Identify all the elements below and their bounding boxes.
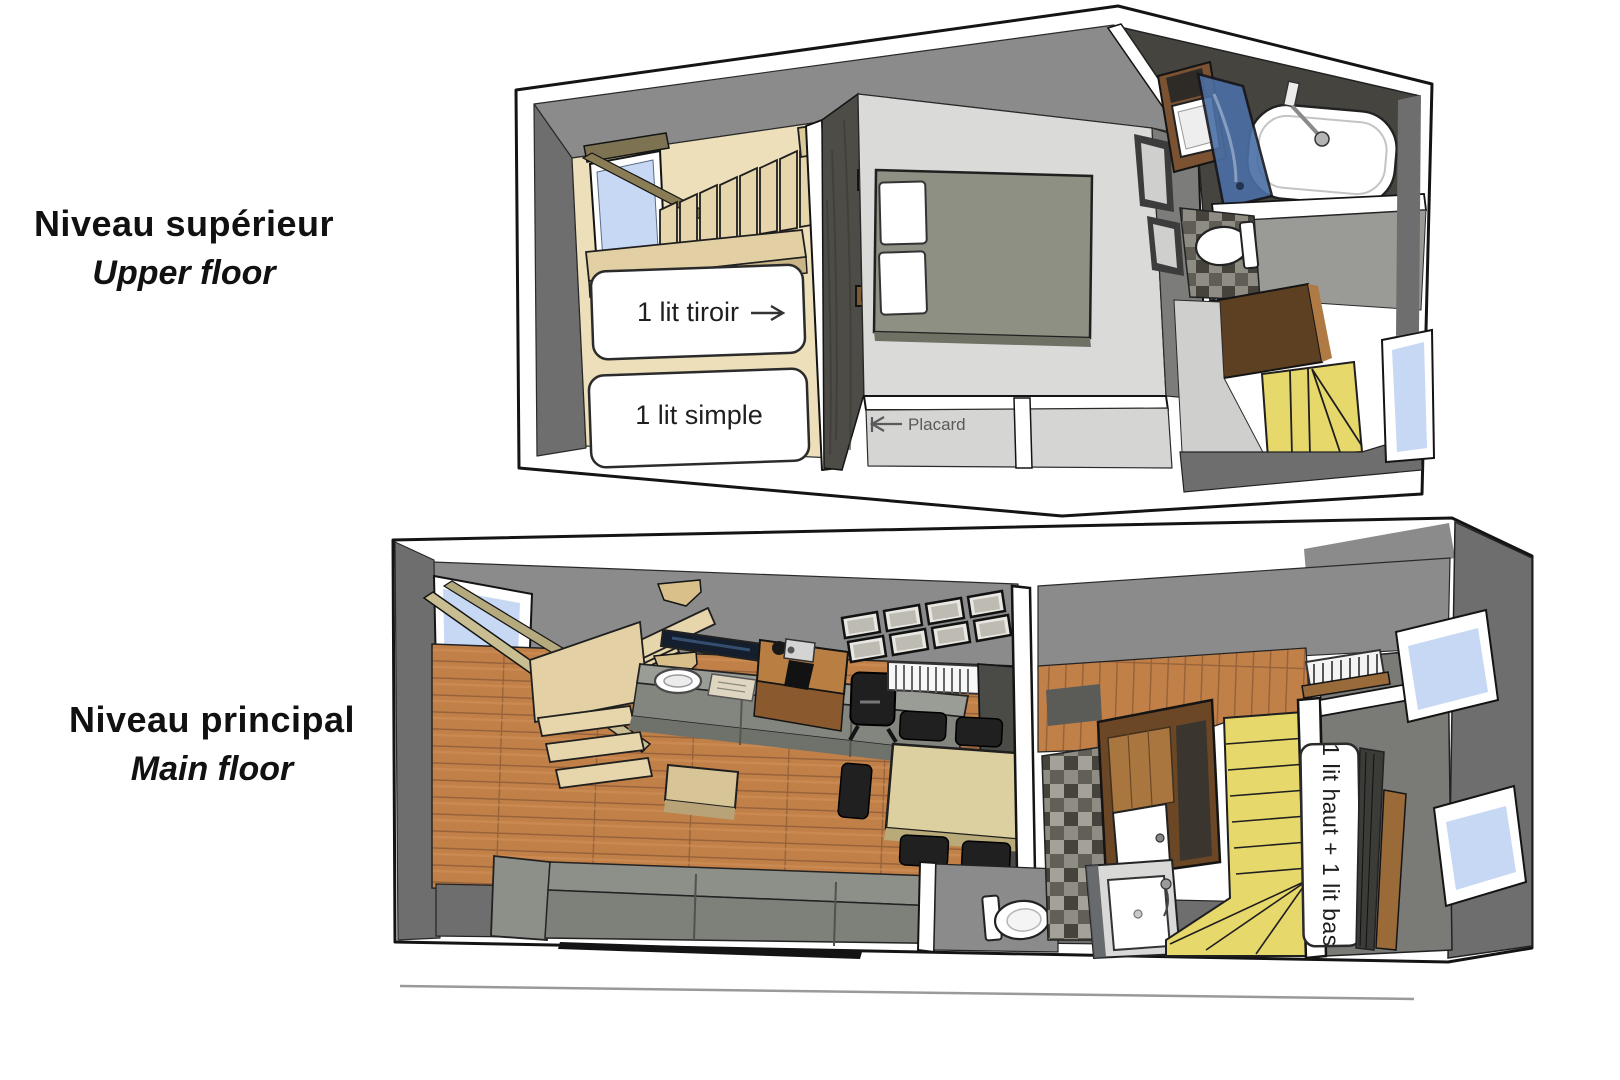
upper-kids-bedroom: 1 lit tiroir 1 lit simple — [534, 104, 833, 468]
pillow — [879, 181, 927, 244]
dining-chair — [955, 717, 1002, 747]
bed-drawer-label: 1 lit tiroir — [637, 297, 739, 327]
radiator — [888, 662, 982, 694]
dining-chair — [899, 711, 946, 741]
shower-head — [1161, 879, 1171, 889]
coffee-table — [664, 765, 738, 820]
closet-label: Placard — [908, 415, 966, 434]
media-cabinet — [754, 639, 848, 731]
door-handle — [1156, 834, 1164, 842]
bed-single-label: 1 lit simple — [635, 400, 763, 430]
pillow — [879, 251, 927, 315]
wc-room — [918, 862, 1058, 952]
floorplan-page: Niveau supérieur Upper floor Niveau prin… — [0, 0, 1620, 1080]
dining-table — [886, 744, 1030, 840]
main-floor-plan: 1 lit haut + 1 lit bas — [393, 518, 1532, 999]
bunk-bed-label: 1 lit haut + 1 lit bas — [1318, 743, 1344, 946]
dining-chair — [838, 763, 873, 819]
page-edge-line — [400, 986, 1414, 999]
upper-yellow-stairs — [1262, 362, 1362, 458]
placard-corridor: Placard — [864, 396, 1172, 468]
window — [1392, 342, 1427, 452]
upper-floor-plan: 1 lit tiroir 1 lit simple — [516, 6, 1434, 516]
front-door — [1098, 700, 1220, 878]
wood-panel — [1208, 284, 1322, 378]
floorplan-graphic: 1 lit tiroir 1 lit simple — [0, 0, 1620, 1080]
tub-faucet — [1315, 132, 1329, 146]
